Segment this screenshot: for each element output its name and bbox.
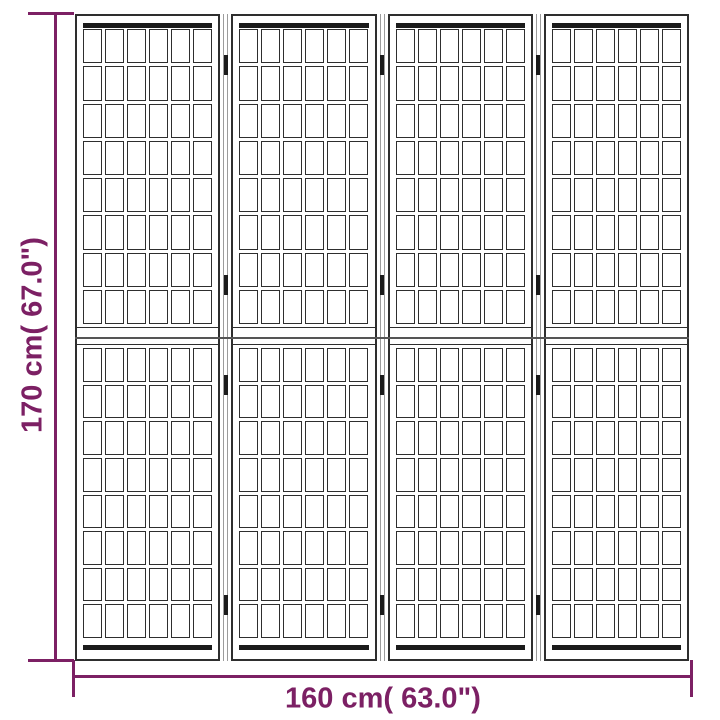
lattice-cell: [83, 66, 102, 100]
lattice-cell: [239, 385, 258, 419]
lattice-cell: [105, 531, 124, 565]
lattice-cell: [506, 495, 525, 529]
lattice-cell: [418, 66, 437, 100]
lattice-cell: [618, 290, 637, 324]
lattice-cell: [105, 348, 124, 382]
lattice-cell: [193, 178, 212, 212]
lattice-cell: [440, 385, 459, 419]
lattice-cell: [662, 385, 681, 419]
lattice-cell: [283, 178, 302, 212]
middle-rail: [77, 327, 218, 345]
lattice-cell: [440, 141, 459, 175]
lattice-cell: [618, 385, 637, 419]
lattice-cell: [105, 604, 124, 638]
lattice-cell: [418, 29, 437, 63]
lattice-cell: [618, 104, 637, 138]
lattice-cell: [127, 385, 146, 419]
lattice-cell: [149, 495, 168, 529]
lattice-cell: [418, 568, 437, 602]
lattice-cell: [640, 531, 659, 565]
lattice-cell: [618, 495, 637, 529]
lattice-cell: [149, 29, 168, 63]
lattice-cell: [193, 215, 212, 249]
lattice-cell: [484, 495, 503, 529]
lattice-cell: [596, 495, 615, 529]
lattice-cell: [349, 215, 368, 249]
lattice-cell: [418, 290, 437, 324]
lattice-cell: [193, 290, 212, 324]
height-dimension-cap-top: [28, 12, 74, 15]
lattice-cell: [440, 531, 459, 565]
lattice-cell: [484, 421, 503, 455]
lattice-cell: [127, 178, 146, 212]
lattice-cell: [574, 531, 593, 565]
lattice-cell: [596, 253, 615, 287]
lattice-cell: [171, 253, 190, 287]
lattice-cell: [418, 458, 437, 492]
lattice-cell: [418, 531, 437, 565]
lattice-cell: [418, 385, 437, 419]
lattice-cell: [149, 290, 168, 324]
lattice-cell: [193, 604, 212, 638]
lattice-cell: [83, 141, 102, 175]
lattice-cell: [327, 421, 346, 455]
lattice-cell: [105, 178, 124, 212]
lattice-cell: [462, 568, 481, 602]
lattice-cell: [305, 531, 324, 565]
lattice-cell: [618, 141, 637, 175]
lattice-cell: [327, 531, 346, 565]
hinge: [380, 595, 384, 615]
lattice-cell: [349, 29, 368, 63]
lattice-cell: [396, 253, 415, 287]
lattice-cell: [462, 348, 481, 382]
lattice-cell: [396, 178, 415, 212]
lattice-cell: [662, 29, 681, 63]
lattice-cell: [261, 495, 280, 529]
lattice-cell: [396, 290, 415, 324]
lattice-grid: [239, 29, 368, 324]
lattice-cell: [596, 178, 615, 212]
lattice-cell: [506, 141, 525, 175]
lattice-cell: [396, 104, 415, 138]
top-rail-bar: [396, 23, 525, 28]
lattice-cell: [618, 215, 637, 249]
lattice-cell: [171, 421, 190, 455]
lattice-cell: [127, 421, 146, 455]
lattice-cell: [127, 495, 146, 529]
lattice-cell: [640, 568, 659, 602]
lattice-cell: [83, 348, 102, 382]
lattice-cell: [171, 104, 190, 138]
lattice-cell: [305, 385, 324, 419]
lattice-cell: [261, 178, 280, 212]
lattice-cell: [440, 253, 459, 287]
lattice-cell: [283, 253, 302, 287]
lattice-cell: [462, 458, 481, 492]
lattice-cell: [305, 604, 324, 638]
lattice-cell: [440, 66, 459, 100]
lattice-cell: [327, 66, 346, 100]
lattice-cell: [105, 141, 124, 175]
lattice-cell: [149, 104, 168, 138]
lattice-cell: [171, 29, 190, 63]
height-dimension-cap-bottom: [28, 659, 74, 662]
lattice-cell: [349, 178, 368, 212]
lattice-cell: [261, 141, 280, 175]
lattice-cell: [283, 215, 302, 249]
lattice-cell: [149, 253, 168, 287]
lattice-cell: [239, 253, 258, 287]
lattice-cell: [640, 458, 659, 492]
lattice-cell: [662, 290, 681, 324]
lattice-cell: [418, 141, 437, 175]
lattice-cell: [662, 421, 681, 455]
lattice-cell: [662, 495, 681, 529]
lattice-cell: [462, 141, 481, 175]
lattice-cell: [193, 141, 212, 175]
lattice-cell: [105, 253, 124, 287]
lattice-cell: [349, 290, 368, 324]
lattice-cell: [396, 141, 415, 175]
lattice-cell: [396, 531, 415, 565]
lattice-cell: [574, 104, 593, 138]
lattice-cell: [574, 253, 593, 287]
lattice-grid: [83, 348, 212, 638]
lattice-cell: [105, 421, 124, 455]
lattice-cell: [618, 568, 637, 602]
lattice-cell: [261, 385, 280, 419]
lattice-cell: [396, 568, 415, 602]
lattice-cell: [171, 215, 190, 249]
lattice-cell: [396, 385, 415, 419]
width-dimension-line: [73, 675, 693, 678]
lattice-cell: [261, 531, 280, 565]
lattice-cell: [640, 290, 659, 324]
bottom-rail-bar: [83, 645, 212, 650]
lattice-cell: [418, 253, 437, 287]
lattice-cell: [239, 215, 258, 249]
lattice-cell: [596, 290, 615, 324]
lattice-cell: [618, 458, 637, 492]
lattice-cell: [440, 215, 459, 249]
lattice-cell: [283, 458, 302, 492]
lattice-cell: [239, 531, 258, 565]
lattice-cell: [349, 348, 368, 382]
lattice-cell: [574, 421, 593, 455]
lattice-cell: [305, 495, 324, 529]
lattice-cell: [193, 348, 212, 382]
lattice-cell: [83, 385, 102, 419]
lattice-cell: [618, 421, 637, 455]
lattice-cell: [462, 495, 481, 529]
lattice-cell: [83, 29, 102, 63]
lattice-cell: [327, 253, 346, 287]
lattice-cell: [261, 104, 280, 138]
lattice-cell: [396, 458, 415, 492]
lattice-cell: [105, 104, 124, 138]
lattice-cell: [596, 421, 615, 455]
lattice-cell: [574, 495, 593, 529]
lattice-cell: [261, 604, 280, 638]
lattice-cell: [506, 458, 525, 492]
lattice-cell: [462, 290, 481, 324]
lattice-cell: [149, 531, 168, 565]
lattice-grid: [83, 29, 212, 324]
lattice-cell: [640, 29, 659, 63]
lattice-cell: [552, 458, 571, 492]
lattice-grid: [239, 348, 368, 638]
lattice-cell: [349, 604, 368, 638]
lattice-cell: [327, 568, 346, 602]
lattice-cell: [349, 458, 368, 492]
lattice-cell: [305, 66, 324, 100]
lattice-cell: [662, 253, 681, 287]
lattice-cell: [574, 29, 593, 63]
lattice-cell: [484, 104, 503, 138]
lattice-cell: [327, 458, 346, 492]
lattice-cell: [552, 604, 571, 638]
lattice-cell: [305, 253, 324, 287]
lattice-cell: [193, 253, 212, 287]
lattice-cell: [462, 531, 481, 565]
lattice-cell: [662, 568, 681, 602]
panel-top-spacer: [233, 16, 374, 23]
lattice-cell: [261, 253, 280, 287]
lattice-cell: [127, 568, 146, 602]
lattice-grid: [396, 348, 525, 638]
lattice-grid: [552, 29, 681, 324]
lattice-grid: [396, 29, 525, 324]
lattice-cell: [552, 385, 571, 419]
lattice-cell: [261, 421, 280, 455]
lattice-cell: [574, 66, 593, 100]
lattice-cell: [105, 568, 124, 602]
lattice-cell: [193, 531, 212, 565]
lattice-cell: [552, 66, 571, 100]
lattice-cell: [440, 290, 459, 324]
lattice-cell: [596, 531, 615, 565]
lattice-cell: [83, 104, 102, 138]
lattice-cell: [127, 66, 146, 100]
lattice-cell: [440, 568, 459, 602]
top-rail-bar: [552, 23, 681, 28]
lattice-cell: [349, 66, 368, 100]
lattice-cell: [396, 495, 415, 529]
lattice-cell: [149, 568, 168, 602]
lattice-cell: [105, 495, 124, 529]
lattice-cell: [171, 604, 190, 638]
lattice-cell: [327, 141, 346, 175]
lattice-cell: [618, 29, 637, 63]
lattice-cell: [640, 348, 659, 382]
lattice-cell: [171, 348, 190, 382]
lattice-cell: [552, 495, 571, 529]
lattice-cell: [440, 348, 459, 382]
lattice-cell: [149, 458, 168, 492]
lattice-cell: [149, 215, 168, 249]
lattice-cell: [127, 458, 146, 492]
lattice-cell: [149, 141, 168, 175]
hinge: [536, 275, 540, 295]
lattice-cell: [283, 141, 302, 175]
lattice-cell: [640, 604, 659, 638]
lattice-cell: [506, 385, 525, 419]
lattice-cell: [171, 141, 190, 175]
lattice-cell: [349, 568, 368, 602]
lattice-cell: [574, 290, 593, 324]
lattice-cell: [618, 253, 637, 287]
lattice-cell: [396, 604, 415, 638]
lattice-cell: [440, 604, 459, 638]
width-dimension-cap-right: [690, 660, 693, 697]
lattice-cell: [618, 66, 637, 100]
lattice-cell: [305, 178, 324, 212]
lattice-cell: [239, 604, 258, 638]
lattice-cell: [418, 604, 437, 638]
lattice-cell: [171, 290, 190, 324]
lattice-cell: [305, 29, 324, 63]
lattice-cell: [462, 421, 481, 455]
lattice-cell: [327, 348, 346, 382]
lattice-cell: [327, 104, 346, 138]
lattice-cell: [127, 348, 146, 382]
hinge: [224, 375, 228, 395]
lattice-cell: [305, 421, 324, 455]
lattice-cell: [662, 215, 681, 249]
lattice-cell: [484, 141, 503, 175]
lattice-cell: [596, 104, 615, 138]
lattice-cell: [640, 141, 659, 175]
lattice-cell: [239, 178, 258, 212]
lattice-cell: [506, 421, 525, 455]
bottom-rail-bar: [239, 645, 368, 650]
lattice-cell: [640, 385, 659, 419]
lattice-cell: [149, 421, 168, 455]
lattice-cell: [506, 604, 525, 638]
lattice-cell: [171, 66, 190, 100]
lattice-cell: [239, 141, 258, 175]
lattice-cell: [484, 290, 503, 324]
lattice-cell: [552, 178, 571, 212]
lattice-cell: [193, 421, 212, 455]
lattice-cell: [552, 290, 571, 324]
middle-rail: [390, 327, 531, 345]
lattice-cell: [261, 348, 280, 382]
lattice-cell: [484, 178, 503, 212]
lattice-cell: [662, 104, 681, 138]
hinge: [224, 55, 228, 75]
lattice-cell: [171, 568, 190, 602]
lattice-cell: [127, 104, 146, 138]
hinge: [224, 595, 228, 615]
lattice-cell: [596, 215, 615, 249]
lattice-cell: [574, 458, 593, 492]
lattice-cell: [193, 66, 212, 100]
lattice-cell: [462, 215, 481, 249]
lattice-cell: [662, 141, 681, 175]
hinge: [380, 375, 384, 395]
lattice-cell: [552, 104, 571, 138]
lattice-cell: [327, 215, 346, 249]
room-divider-screen: [75, 14, 689, 661]
lattice-cell: [596, 385, 615, 419]
lattice-cell: [440, 458, 459, 492]
lattice-cell: [149, 348, 168, 382]
lattice-cell: [418, 104, 437, 138]
panel-top-spacer: [390, 16, 531, 23]
lattice-cell: [440, 104, 459, 138]
height-dimension-label: 170 cm( 67.0"): [19, 237, 48, 433]
lattice-cell: [596, 348, 615, 382]
lattice-cell: [552, 253, 571, 287]
lattice-cell: [596, 458, 615, 492]
lattice-cell: [193, 495, 212, 529]
lattice-cell: [105, 458, 124, 492]
height-dimension-line: [54, 12, 57, 662]
lattice-cell: [484, 66, 503, 100]
lattice-cell: [574, 348, 593, 382]
width-dimension-cap-left: [72, 660, 75, 697]
lattice-cell: [349, 385, 368, 419]
top-rail-bar: [239, 23, 368, 28]
lattice-cell: [640, 253, 659, 287]
lattice-cell: [418, 348, 437, 382]
lattice-grid: [552, 348, 681, 638]
lattice-cell: [552, 141, 571, 175]
lattice-cell: [418, 495, 437, 529]
top-rail-bar: [83, 23, 212, 28]
lattice-cell: [574, 215, 593, 249]
lattice-cell: [349, 104, 368, 138]
lattice-cell: [149, 385, 168, 419]
lattice-cell: [640, 66, 659, 100]
lattice-cell: [418, 215, 437, 249]
lattice-cell: [574, 141, 593, 175]
lattice-cell: [484, 215, 503, 249]
lattice-cell: [327, 604, 346, 638]
lattice-cell: [462, 29, 481, 63]
lattice-cell: [105, 290, 124, 324]
lattice-cell: [83, 178, 102, 212]
lattice-cell: [396, 421, 415, 455]
lattice-cell: [283, 531, 302, 565]
lattice-cell: [149, 66, 168, 100]
lattice-cell: [396, 29, 415, 63]
lattice-cell: [618, 604, 637, 638]
lattice-cell: [506, 348, 525, 382]
lattice-cell: [440, 495, 459, 529]
lattice-cell: [193, 568, 212, 602]
lattice-cell: [349, 495, 368, 529]
lattice-cell: [552, 531, 571, 565]
lattice-cell: [283, 29, 302, 63]
lattice-cell: [640, 421, 659, 455]
bottom-rail-bar: [396, 645, 525, 650]
lattice-cell: [127, 141, 146, 175]
lattice-cell: [506, 66, 525, 100]
lattice-cell: [462, 253, 481, 287]
lattice-cell: [193, 385, 212, 419]
panel-top-spacer: [77, 16, 218, 23]
hinge: [536, 375, 540, 395]
lattice-cell: [171, 495, 190, 529]
lattice-cell: [596, 66, 615, 100]
lattice-cell: [171, 178, 190, 212]
lattice-cell: [283, 66, 302, 100]
product-dimension-diagram: 170 cm( 67.0") 160 cm( 63.0"): [0, 0, 720, 720]
lattice-cell: [506, 531, 525, 565]
